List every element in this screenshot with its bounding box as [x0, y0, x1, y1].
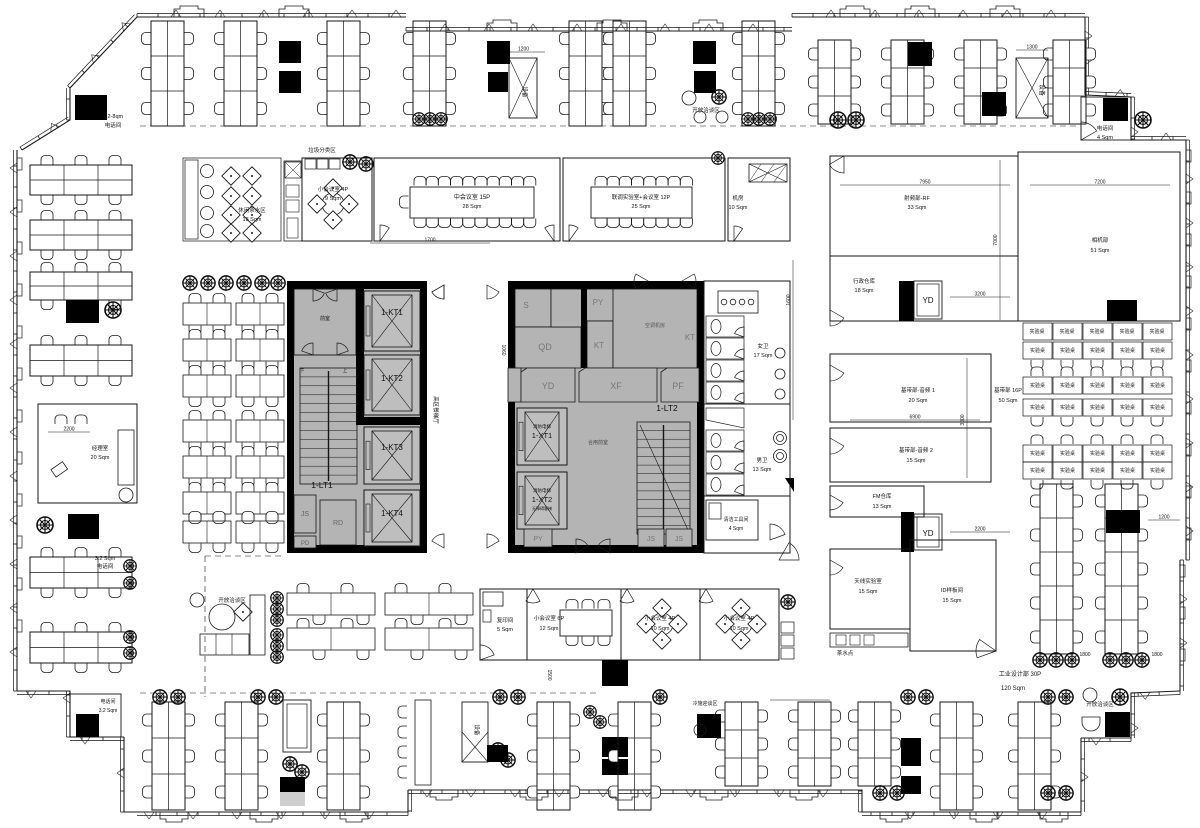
svg-text:25 Sqm: 25 Sqm [632, 204, 651, 210]
svg-text:120 Sqm: 120 Sqm [1001, 686, 1025, 692]
svg-text:设备: 设备 [521, 86, 529, 98]
svg-text:实验桌: 实验桌 [1030, 450, 1045, 457]
svg-text:7950: 7950 [919, 180, 930, 186]
svg-text:17 Sqm: 17 Sqm [754, 353, 773, 359]
svg-text:消防电梯: 消防电梯 [533, 487, 551, 494]
svg-text:实验桌: 实验桌 [1149, 328, 1164, 335]
svg-text:实验桌: 实验桌 [1030, 404, 1045, 411]
svg-text:15 Sqm: 15 Sqm [859, 589, 878, 595]
svg-text:小会议室 4P: 小会议室 4P [645, 614, 676, 622]
svg-text:实验桌: 实验桌 [1060, 450, 1075, 457]
svg-text:基带部 16P: 基带部 16P [994, 386, 1022, 394]
svg-text:PD: PD [301, 541, 310, 547]
svg-text:实验桌: 实验桌 [1030, 347, 1045, 354]
svg-text:复印间: 复印间 [497, 616, 514, 624]
svg-text:PY: PY [533, 536, 543, 543]
svg-text:实验桌: 实验桌 [1150, 450, 1165, 457]
svg-text:7000: 7000 [993, 234, 999, 245]
svg-text:JS: JS [301, 511, 310, 518]
svg-text:小会议室 4P: 小会议室 4P [318, 185, 349, 193]
svg-text:51 Sqm: 51 Sqm [1091, 248, 1110, 254]
svg-text:5 Sqm: 5 Sqm [497, 627, 513, 633]
svg-text:高区餐梯厅: 高区餐梯厅 [432, 396, 440, 424]
svg-text:实验桌: 实验桌 [1120, 450, 1135, 457]
svg-text:开放洽谈区: 开放洽谈区 [692, 106, 720, 114]
svg-text:10 Sqm: 10 Sqm [651, 626, 670, 632]
svg-text:PY: PY [593, 298, 604, 307]
svg-text:2200: 2200 [974, 527, 985, 533]
svg-text:18 Sqm: 18 Sqm [243, 217, 262, 223]
svg-text:经理室: 经理室 [92, 444, 109, 452]
svg-text:实验桌: 实验桌 [1150, 404, 1165, 411]
svg-text:7200: 7200 [1094, 180, 1105, 186]
svg-text:KT: KT [685, 333, 695, 342]
svg-text:1200: 1200 [1158, 515, 1169, 521]
svg-text:基带部-音频 2: 基带部-音频 2 [899, 446, 933, 454]
svg-text:休闲茶水区: 休闲茶水区 [238, 206, 266, 214]
svg-text:ID样板间: ID样板间 [941, 586, 963, 594]
svg-text:3200: 3200 [974, 292, 985, 298]
svg-text:射频部-RF: 射频部-RF [904, 194, 930, 202]
svg-text:实验桌: 实验桌 [1090, 450, 1105, 457]
svg-text:1500: 1500 [546, 669, 552, 680]
svg-text:1-KT2: 1-KT2 [381, 374, 403, 383]
svg-text:2200: 2200 [63, 427, 74, 433]
svg-text:1-KT1: 1-KT1 [381, 308, 403, 317]
svg-text:小会议室 6P: 小会议室 6P [534, 614, 565, 622]
svg-text:机房: 机房 [732, 194, 744, 202]
svg-text:RD: RD [333, 520, 343, 527]
svg-text:实验桌: 实验桌 [1060, 467, 1075, 474]
svg-text:33 Sqm: 33 Sqm [908, 205, 927, 211]
svg-text:电话间: 电话间 [100, 698, 115, 705]
svg-text:消防电梯: 消防电梯 [533, 423, 551, 430]
svg-text:1-KT3: 1-KT3 [381, 443, 403, 452]
svg-text:1-XT1: 1-XT1 [532, 431, 552, 440]
svg-text:1800: 1800 [1151, 652, 1162, 658]
svg-text:实验桌: 实验桌 [1090, 467, 1105, 474]
svg-text:10 Sqm: 10 Sqm [729, 205, 748, 211]
svg-text:女卫: 女卫 [757, 342, 769, 350]
svg-text:实验桌: 实验桌 [1089, 328, 1104, 335]
svg-text:合用前室: 合用前室 [588, 439, 608, 446]
svg-text:18 Sqm: 18 Sqm [855, 288, 874, 294]
svg-text:无障碍客梯: 无障碍客梯 [532, 505, 552, 511]
svg-text:28 Sqm: 28 Sqm [463, 204, 482, 210]
svg-text:空调机房: 空调机房 [645, 322, 665, 329]
svg-text:小会议室 4P: 小会议室 4P [724, 614, 755, 622]
svg-text:实验桌: 实验桌 [1060, 404, 1075, 411]
svg-text:JS: JS [675, 536, 684, 543]
svg-text:50 Sqm: 50 Sqm [999, 398, 1018, 404]
svg-text:1-LT1: 1-LT1 [311, 480, 333, 490]
svg-text:实验桌: 实验桌 [1150, 467, 1165, 474]
svg-text:实验桌: 实验桌 [1030, 382, 1045, 389]
svg-text:实验桌: 实验桌 [1090, 382, 1105, 389]
svg-text:电话间: 电话间 [97, 562, 114, 570]
svg-text:YD: YD [542, 381, 555, 391]
svg-text:6900: 6900 [909, 415, 920, 421]
svg-text:实验桌: 实验桌 [1150, 382, 1165, 389]
svg-text:1-KT4: 1-KT4 [381, 509, 403, 518]
svg-text:JS: JS [647, 536, 656, 543]
svg-text:3.2-8qm: 3.2-8qm [103, 114, 124, 120]
svg-text:电话间: 电话间 [1097, 124, 1114, 132]
svg-text:1060: 1060 [500, 344, 506, 355]
svg-text:实验桌: 实验桌 [1120, 382, 1135, 389]
svg-text:联调实验室+会议室 12P: 联调实验室+会议室 12P [612, 193, 671, 201]
svg-text:设备: 设备 [1038, 84, 1046, 96]
svg-text:开放洽谈区: 开放洽谈区 [218, 596, 246, 604]
svg-text:中会议室 15P: 中会议室 15P [454, 193, 490, 201]
svg-text:1300: 1300 [1026, 45, 1037, 51]
svg-text:1-LT2: 1-LT2 [656, 403, 678, 413]
svg-text:15 Sqm: 15 Sqm [943, 598, 962, 604]
svg-text:XF: XF [610, 381, 622, 391]
svg-text:相机部: 相机部 [1092, 236, 1109, 244]
svg-text:1-XT2: 1-XT2 [532, 495, 552, 504]
svg-text:15 Sqm: 15 Sqm [907, 458, 926, 464]
svg-text:QD: QD [538, 342, 552, 352]
svg-text:1200: 1200 [518, 47, 529, 53]
svg-text:清洁工具间: 清洁工具间 [723, 516, 748, 523]
svg-text:1600: 1600 [786, 294, 792, 305]
svg-text:实验桌: 实验桌 [1090, 404, 1105, 411]
svg-text:行政仓库: 行政仓库 [853, 277, 876, 285]
svg-text:4 Sqm: 4 Sqm [729, 526, 743, 532]
svg-text:实验桌: 实验桌 [1120, 467, 1135, 474]
svg-text:茶水点: 茶水点 [837, 649, 854, 657]
svg-text:天线实验室: 天线实验室 [854, 577, 882, 585]
svg-text:FM仓库: FM仓库 [873, 492, 892, 500]
svg-text:1800: 1800 [1079, 652, 1090, 658]
svg-text:20 Sqm: 20 Sqm [909, 398, 928, 404]
svg-text:20 Sqm: 20 Sqm [91, 455, 110, 461]
svg-text:实验桌: 实验桌 [1059, 328, 1074, 335]
svg-text:YD: YD [922, 296, 933, 305]
svg-text:开放洽谈区: 开放洽谈区 [1086, 700, 1114, 708]
svg-text:前室: 前室 [320, 315, 330, 322]
svg-text:13 Sqm: 13 Sqm [873, 504, 892, 510]
svg-text:冷施迎谈区: 冷施迎谈区 [692, 700, 717, 707]
svg-text:男卫: 男卫 [756, 457, 768, 464]
svg-text:实验桌: 实验桌 [1120, 404, 1135, 411]
svg-text:S: S [523, 301, 528, 310]
svg-text:实验桌: 实验桌 [1120, 347, 1135, 354]
svg-text:工业设计部 30P: 工业设计部 30P [999, 670, 1041, 678]
svg-text:4 Sqm: 4 Sqm [1097, 135, 1113, 141]
svg-text:PF: PF [672, 381, 684, 391]
svg-text:实验桌: 实验桌 [1090, 347, 1105, 354]
svg-text:实验桌: 实验桌 [1150, 347, 1165, 354]
svg-text:3.2 Sqm: 3.2 Sqm [99, 708, 118, 714]
svg-text:上: 上 [343, 367, 348, 373]
svg-text:10 Sqm: 10 Sqm [730, 626, 749, 632]
svg-text:3000: 3000 [960, 414, 966, 425]
svg-text:13 Sqm: 13 Sqm [753, 467, 772, 473]
svg-text:实验桌: 实验桌 [1030, 467, 1045, 474]
svg-text:基带部-音频 1: 基带部-音频 1 [901, 386, 935, 394]
svg-text:实验桌: 实验桌 [1060, 382, 1075, 389]
svg-text:实验桌: 实验桌 [1060, 347, 1075, 354]
svg-text:垃圾分类区: 垃圾分类区 [308, 146, 336, 154]
svg-text:实验桌: 实验桌 [1029, 328, 1044, 335]
svg-text:YD: YD [922, 529, 933, 538]
svg-text:实验桌: 实验桌 [1119, 328, 1134, 335]
svg-text:设备: 设备 [473, 724, 481, 736]
svg-text:电话间: 电话间 [105, 121, 122, 129]
svg-text:KT: KT [594, 341, 604, 350]
svg-text:9 Sqm: 9 Sqm [325, 196, 341, 202]
svg-text:12 Sqm: 12 Sqm [540, 626, 559, 632]
